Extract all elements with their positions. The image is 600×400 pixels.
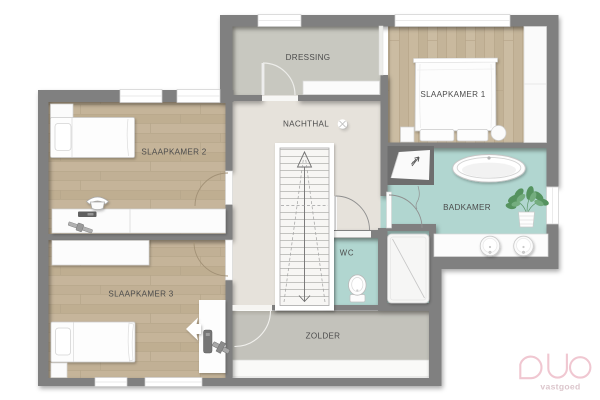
svg-text:NACHTHAL: NACHTHAL [283, 120, 329, 129]
svg-text:ZOLDER: ZOLDER [306, 332, 341, 341]
svg-text:SLAAPKAMER 3: SLAAPKAMER 3 [108, 290, 173, 299]
svg-text:SLAAPKAMER 2: SLAAPKAMER 2 [141, 148, 206, 157]
svg-text:BADKAMER: BADKAMER [443, 203, 491, 212]
svg-text:WC: WC [340, 249, 355, 258]
svg-text:vastgoed: vastgoed [540, 382, 580, 392]
svg-text:DRESSING: DRESSING [286, 53, 331, 62]
svg-text:SLAAPKAMER 1: SLAAPKAMER 1 [420, 90, 485, 99]
